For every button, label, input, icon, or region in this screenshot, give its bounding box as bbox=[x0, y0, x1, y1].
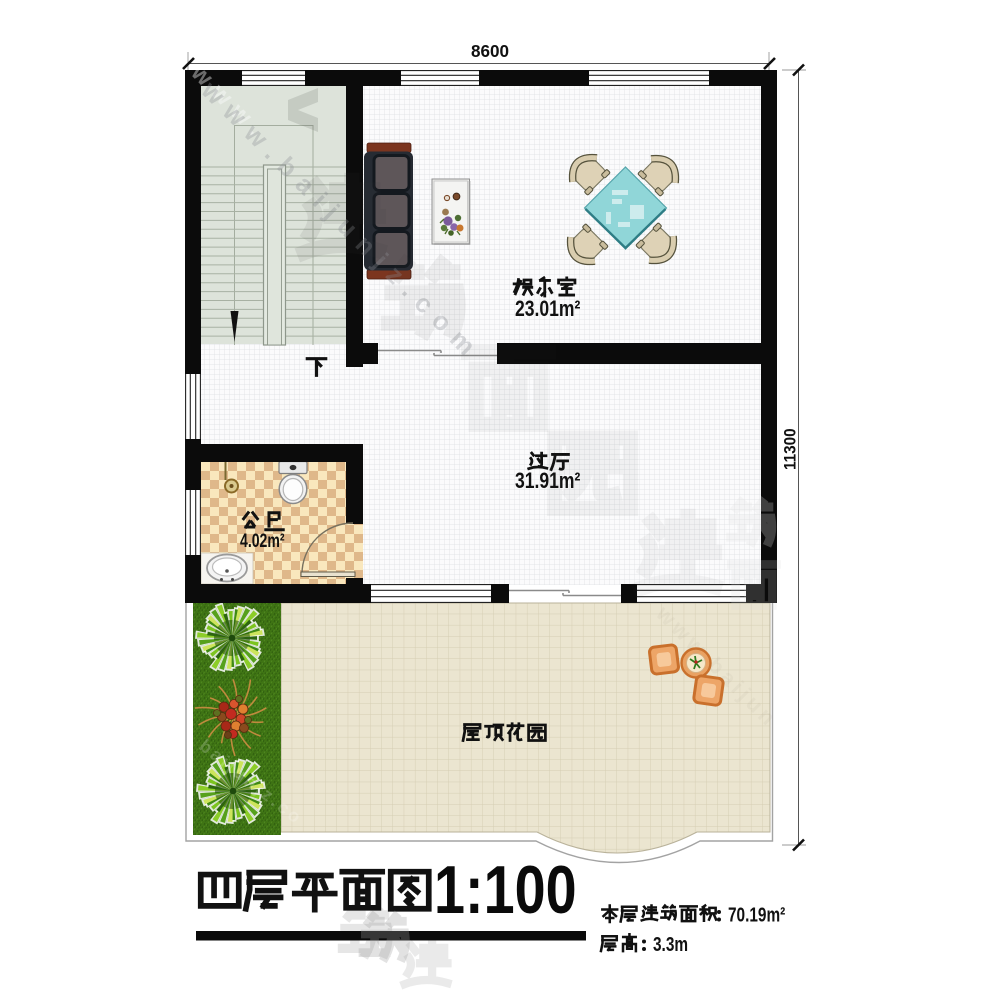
svg-text:4.02m²: 4.02m² bbox=[240, 530, 285, 552]
svg-text:8600: 8600 bbox=[471, 41, 509, 62]
svg-text:11300: 11300 bbox=[781, 428, 800, 470]
svg-text:23.01m²: 23.01m² bbox=[515, 297, 581, 322]
svg-text:1:100: 1:100 bbox=[434, 853, 577, 928]
svg-text:3.3m: 3.3m bbox=[653, 933, 688, 956]
svg-text:70.19m²: 70.19m² bbox=[728, 903, 785, 926]
